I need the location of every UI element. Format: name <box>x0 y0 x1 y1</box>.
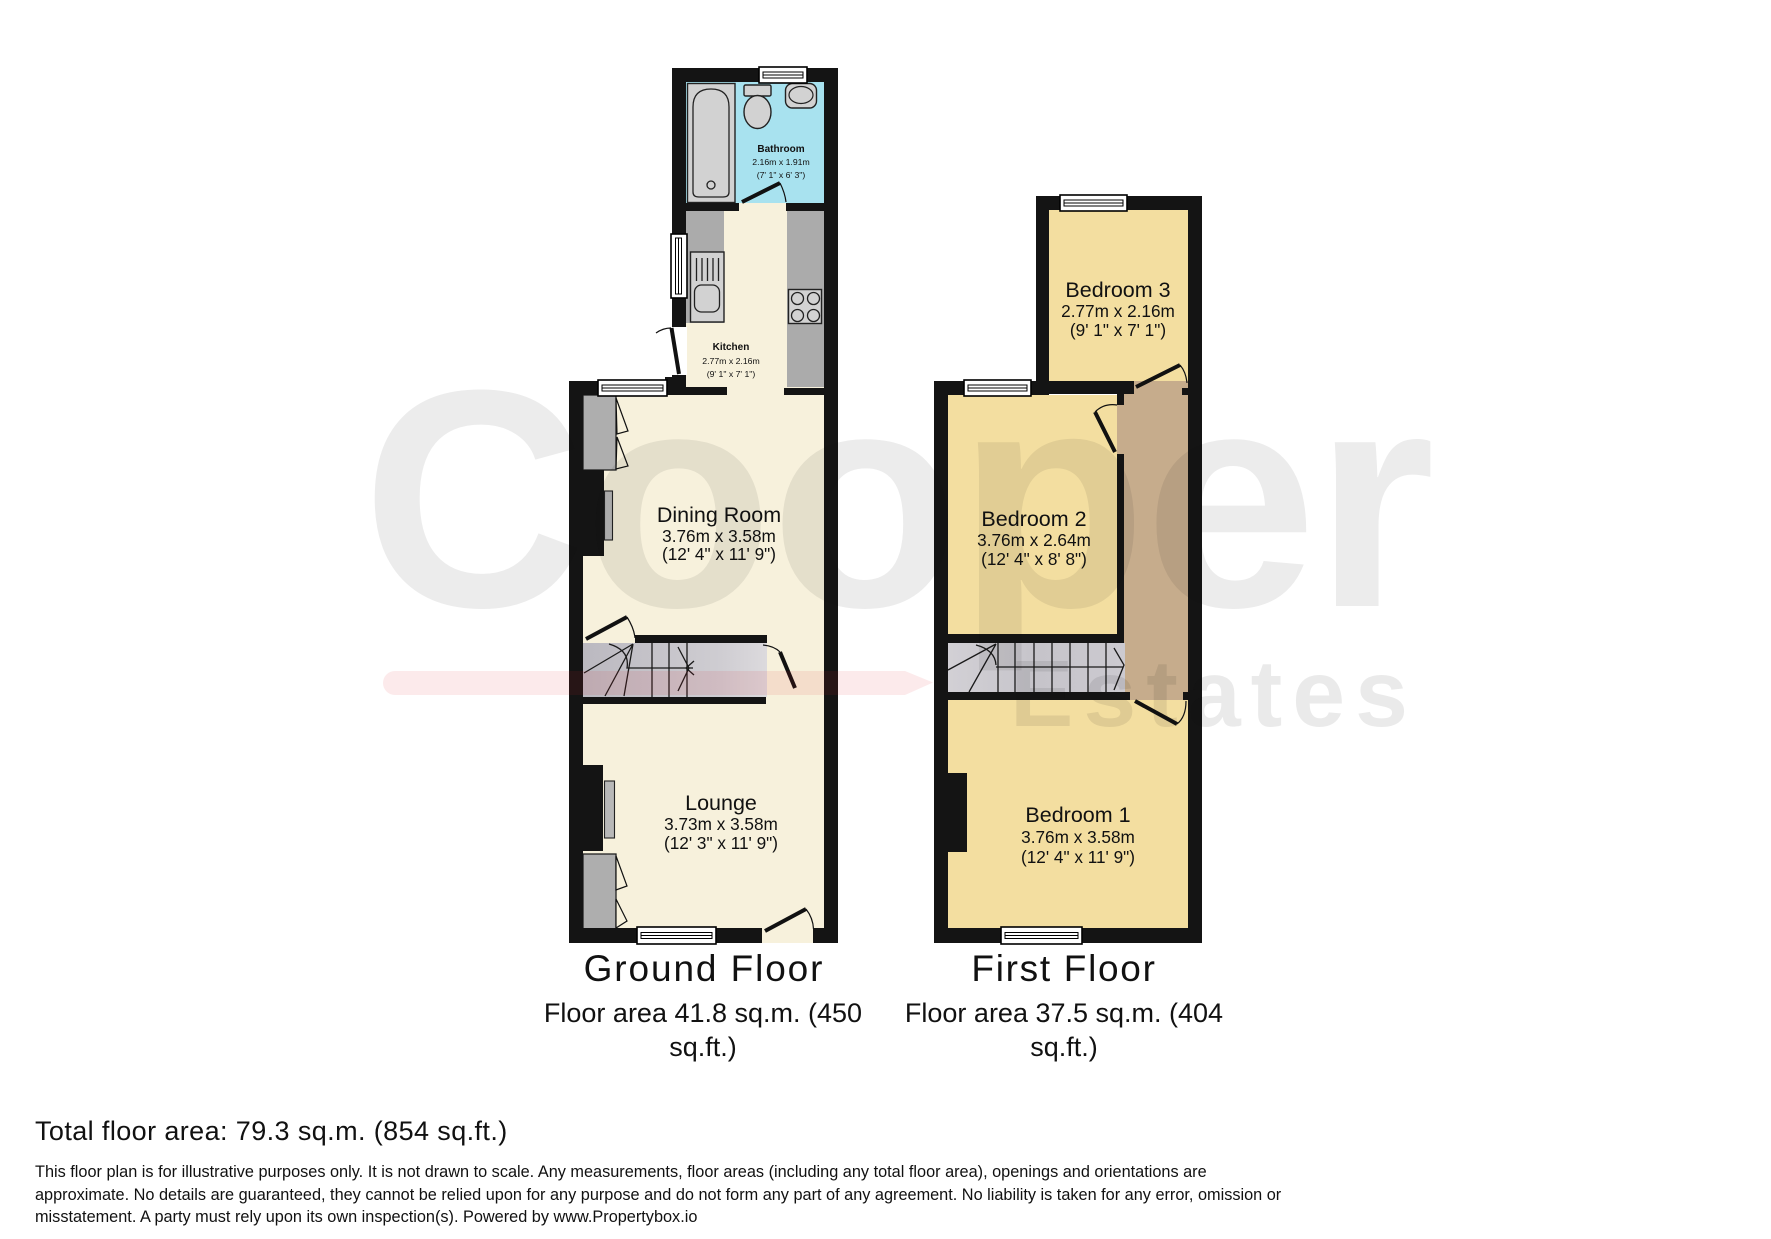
svg-text:Ground Floor: Ground Floor <box>584 948 825 989</box>
svg-text:First Floor: First Floor <box>971 948 1156 989</box>
svg-text:Bathroom: Bathroom <box>757 144 804 155</box>
svg-text:(7' 1" x 6' 3"): (7' 1" x 6' 3") <box>757 170 806 180</box>
svg-text:Lounge: Lounge <box>685 791 757 815</box>
svg-text:Bedroom 3: Bedroom 3 <box>1065 278 1170 302</box>
svg-text:sq.ft.): sq.ft.) <box>1030 1032 1098 1062</box>
svg-text:Estates: Estates <box>1010 641 1418 747</box>
svg-text:Bedroom 1: Bedroom 1 <box>1025 803 1130 827</box>
svg-text:(12' 3" x 11' 9"): (12' 3" x 11' 9") <box>664 833 778 853</box>
svg-text:Floor area 37.5 sq.m. (404: Floor area 37.5 sq.m. (404 <box>905 998 1223 1028</box>
svg-text:This floor plan is for illustr: This floor plan is for illustrative purp… <box>35 1163 1207 1181</box>
svg-text:misstatement. A party must rel: misstatement. A party must rely upon its… <box>35 1208 697 1226</box>
svg-text:Total floor area: 79.3 sq.m. (: Total floor area: 79.3 sq.m. (854 sq.ft.… <box>35 1116 508 1146</box>
svg-text:2.77m x 2.16m: 2.77m x 2.16m <box>1061 301 1175 321</box>
svg-text:Floor area 41.8 sq.m. (450: Floor area 41.8 sq.m. (450 <box>544 998 862 1028</box>
svg-text:3.76m x 3.58m: 3.76m x 3.58m <box>1021 827 1135 847</box>
svg-text:approximate. No details are gu: approximate. No details are guaranteed, … <box>35 1186 1282 1204</box>
svg-text:Cooper: Cooper <box>362 325 1433 674</box>
svg-text:2.16m x 1.91m: 2.16m x 1.91m <box>752 157 809 167</box>
svg-text:(12' 4" x 11' 9"): (12' 4" x 11' 9") <box>1021 847 1135 867</box>
svg-text:sq.ft.): sq.ft.) <box>669 1032 737 1062</box>
svg-text:3.73m x 3.58m: 3.73m x 3.58m <box>664 814 778 834</box>
